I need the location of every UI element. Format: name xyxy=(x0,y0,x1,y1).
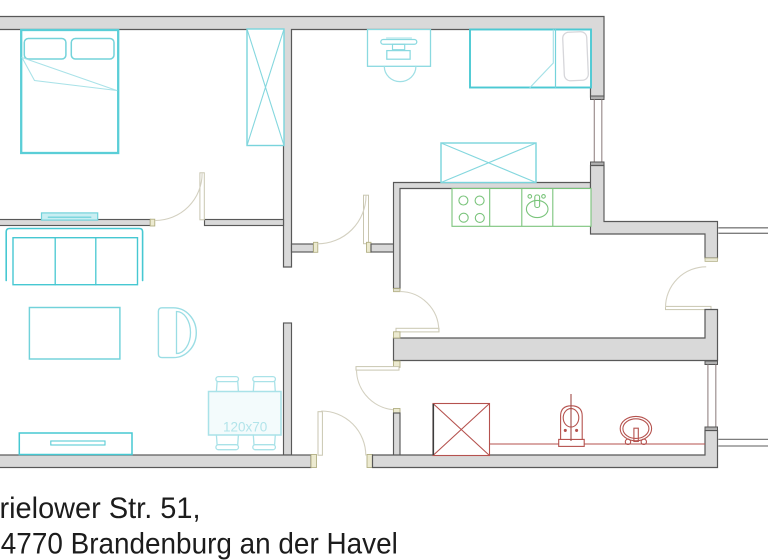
svg-text:120x70: 120x70 xyxy=(223,420,267,435)
svg-text:rielower Str. 51,: rielower Str. 51, xyxy=(0,492,201,525)
svg-text:4770 Brandenburg an der Havel: 4770 Brandenburg an der Havel xyxy=(1,528,398,560)
